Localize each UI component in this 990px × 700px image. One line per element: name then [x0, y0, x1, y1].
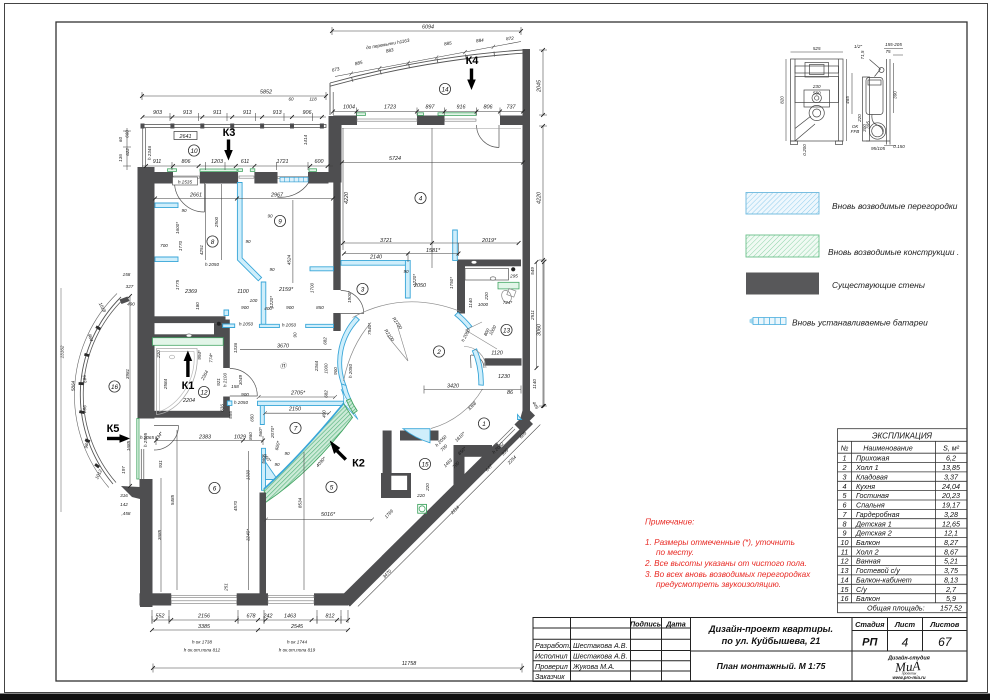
svg-text:3981: 3981: [125, 368, 130, 379]
svg-text:180: 180: [195, 302, 200, 310]
svg-text:Вновь возводимые конструкции .: Вновь возводимые конструкции .: [828, 247, 959, 257]
svg-text:2070*: 2070*: [270, 426, 275, 439]
svg-text:295: 295: [509, 274, 518, 279]
svg-text:220: 220: [416, 493, 425, 498]
svg-text:3,28: 3,28: [944, 510, 958, 519]
svg-text:913: 913: [183, 110, 192, 116]
svg-text:14: 14: [441, 87, 449, 94]
svg-text:13: 13: [841, 566, 849, 575]
svg-text:Существующие стены: Существующие стены: [832, 280, 925, 290]
svg-text:2. Все высоты указаны от чисто: 2. Все высоты указаны от чистого пола.: [644, 559, 807, 568]
svg-text:1: 1: [843, 454, 847, 463]
svg-text:20,23: 20,23: [941, 491, 960, 500]
svg-text:4: 4: [419, 196, 423, 203]
svg-text:86: 86: [507, 390, 513, 396]
svg-text:2: 2: [436, 349, 441, 356]
svg-text:5,21: 5,21: [944, 557, 958, 566]
svg-text:5864: 5864: [71, 380, 76, 391]
svg-text:3240*: 3240*: [246, 529, 251, 541]
svg-text:1581*: 1581*: [426, 248, 441, 254]
svg-text:ЭКСПЛИКАЦИЯ: ЭКСПЛИКАЦИЯ: [872, 432, 933, 441]
svg-text:1775: 1775: [175, 279, 180, 290]
svg-text:3385: 3385: [198, 624, 211, 630]
svg-text:1203: 1203: [211, 159, 223, 165]
svg-text:1723: 1723: [384, 105, 396, 111]
svg-text:24,04: 24,04: [941, 482, 960, 491]
svg-text:2159*: 2159*: [278, 287, 294, 293]
svg-text:4: 4: [902, 636, 909, 650]
svg-text:1230: 1230: [498, 374, 510, 380]
svg-text:921: 921: [216, 378, 221, 386]
svg-text:5016*: 5016*: [321, 512, 336, 518]
svg-text:15: 15: [421, 462, 429, 469]
svg-text:12: 12: [200, 390, 208, 397]
svg-text:16: 16: [841, 594, 849, 603]
svg-text:Стадия: Стадия: [855, 620, 885, 629]
svg-text:142: 142: [120, 502, 128, 507]
svg-text:5: 5: [330, 485, 334, 492]
svg-text:724*: 724*: [503, 300, 513, 305]
svg-text:1220*: 1220*: [412, 274, 417, 286]
svg-text:6: 6: [213, 486, 217, 493]
svg-text:S, м²: S, м²: [943, 444, 960, 453]
svg-text:900: 900: [286, 305, 294, 310]
svg-text:220: 220: [425, 483, 430, 492]
svg-text:157,52: 157,52: [940, 604, 962, 613]
svg-text:Лист: Лист: [894, 620, 916, 629]
svg-text:h 2050: h 2050: [282, 323, 296, 328]
svg-text:931: 931: [158, 460, 163, 468]
svg-text:,458: ,458: [122, 511, 131, 516]
svg-text:Гостиная: Гостиная: [856, 491, 889, 500]
svg-text:4: 4: [843, 482, 847, 491]
svg-text:12: 12: [841, 557, 849, 566]
svg-text:806: 806: [182, 159, 191, 165]
svg-text:Детская 1: Детская 1: [855, 519, 892, 528]
svg-text:h 2535: h 2535: [178, 180, 192, 185]
svg-text:Балкон: Балкон: [856, 594, 880, 603]
svg-text:Дата: Дата: [665, 620, 686, 629]
svg-text:8,27: 8,27: [944, 538, 959, 547]
svg-text:490: 490: [127, 302, 135, 307]
svg-text:2,7: 2,7: [945, 585, 957, 594]
svg-text:FFB: FFB: [851, 129, 860, 134]
svg-text:911: 911: [213, 110, 222, 116]
svg-text:860: 860: [248, 432, 253, 440]
svg-text:737: 737: [507, 105, 517, 111]
svg-text:3: 3: [843, 472, 847, 481]
svg-text:С/у: С/у: [856, 585, 867, 594]
svg-text:90: 90: [403, 269, 409, 274]
svg-text:700: 700: [160, 243, 168, 248]
svg-text:Кладовая: Кладовая: [856, 472, 888, 481]
svg-text:4220: 4220: [537, 192, 543, 204]
svg-text:h 2050: h 2050: [234, 400, 248, 405]
svg-text:2641: 2641: [179, 134, 192, 140]
svg-text:197: 197: [121, 466, 126, 474]
svg-text:71,5: 71,5: [860, 50, 865, 59]
svg-text:9: 9: [278, 219, 282, 226]
svg-text:327: 327: [126, 284, 134, 289]
svg-text:100: 100: [250, 298, 258, 303]
svg-text:872: 872: [506, 36, 514, 42]
svg-text:560*: 560*: [258, 427, 263, 437]
svg-text:8: 8: [843, 519, 847, 528]
svg-text:994*: 994*: [197, 350, 202, 360]
svg-text:www.pro-mia.ru: www.pro-mia.ru: [892, 675, 925, 680]
svg-text:Гардеробная: Гардеробная: [856, 510, 900, 519]
svg-text:549: 549: [530, 267, 535, 275]
svg-text:5485: 5485: [170, 494, 175, 505]
svg-text:1414: 1414: [303, 134, 308, 145]
svg-text:650: 650: [250, 414, 255, 422]
svg-text:13162: 13162: [60, 345, 65, 358]
svg-text:3721: 3721: [380, 238, 392, 244]
svg-text:1900*: 1900*: [347, 291, 352, 303]
svg-text:90: 90: [245, 239, 251, 244]
svg-text:1: 1: [482, 421, 486, 428]
svg-text:90: 90: [293, 332, 298, 338]
svg-text:60: 60: [288, 97, 294, 102]
svg-text:предусмотреть звукоизоляцию.: предусмотреть звукоизоляцию.: [656, 580, 781, 589]
svg-text:1. Размеры отмеченные (*), уто: 1. Размеры отмеченные (*), уточнить: [645, 538, 795, 547]
svg-text:220: 220: [857, 114, 862, 123]
svg-text:h 2065: h 2065: [140, 435, 154, 440]
svg-text:8,67: 8,67: [944, 547, 959, 556]
svg-text:№: №: [841, 444, 849, 453]
svg-text:5,9: 5,9: [946, 594, 956, 603]
svg-text:1721: 1721: [277, 159, 289, 165]
svg-text:90: 90: [284, 451, 290, 456]
svg-text:911: 911: [153, 159, 162, 165]
svg-text:1750*: 1750*: [449, 277, 454, 289]
svg-text:90: 90: [274, 462, 280, 467]
svg-text:Холл 2: Холл 2: [855, 547, 879, 556]
svg-text:12,1: 12,1: [944, 529, 958, 538]
svg-text:155-205: 155-205: [885, 42, 902, 47]
svg-text:3: 3: [361, 287, 365, 294]
svg-text:Примечание:: Примечание:: [645, 518, 694, 527]
svg-text:2364: 2364: [314, 360, 319, 372]
svg-text:К2: К2: [352, 458, 365, 470]
svg-text:Общая площадь:: Общая площадь:: [867, 604, 925, 613]
svg-text:4220: 4220: [344, 192, 350, 204]
svg-text:5724: 5724: [389, 156, 401, 162]
svg-text:2511: 2511: [530, 310, 535, 321]
svg-text:h ок.от.пола 819: h ок.от.пола 819: [279, 648, 316, 653]
svg-text:13,85: 13,85: [942, 463, 961, 472]
svg-text:h ок.от.пола 812: h ок.от.пола 812: [184, 648, 221, 653]
svg-text:812: 812: [326, 614, 335, 620]
svg-text:1336: 1336: [233, 342, 238, 353]
svg-text:903: 903: [153, 110, 162, 116]
svg-text:8,13: 8,13: [944, 576, 958, 585]
svg-text:850: 850: [316, 305, 324, 310]
svg-text:13: 13: [503, 328, 511, 335]
svg-text:525: 525: [813, 46, 821, 51]
svg-text:Шестакова А.В.: Шестакова А.В.: [573, 641, 628, 650]
svg-text:1220*: 1220*: [269, 296, 274, 308]
svg-text:900: 900: [241, 305, 249, 310]
svg-text:Листов: Листов: [929, 620, 960, 629]
svg-text:1120: 1120: [491, 351, 503, 357]
svg-text:136: 136: [118, 154, 123, 162]
svg-text:900: 900: [333, 367, 338, 375]
svg-text:1140: 1140: [468, 298, 473, 308]
svg-text:900: 900: [241, 392, 249, 397]
svg-text:897: 897: [426, 105, 436, 111]
svg-text:660: 660: [125, 130, 130, 138]
svg-text:90: 90: [181, 208, 187, 213]
svg-text:8: 8: [211, 239, 215, 246]
svg-text:19,17: 19,17: [942, 501, 961, 510]
svg-text:Спальня: Спальня: [856, 501, 885, 510]
svg-text:12,65: 12,65: [942, 519, 961, 528]
svg-text:Разработ.: Разработ.: [535, 641, 571, 650]
svg-text:К5: К5: [107, 423, 120, 435]
svg-text:806: 806: [484, 105, 493, 111]
svg-text:983: 983: [82, 375, 88, 384]
svg-text:Вновь устанавливаемые батареи: Вновь устанавливаемые батареи: [792, 318, 928, 328]
svg-text:75: 75: [885, 49, 891, 54]
svg-text:2584: 2584: [163, 378, 168, 390]
svg-text:884: 884: [476, 38, 485, 44]
svg-text:6,2: 6,2: [946, 454, 956, 463]
svg-text:Прихожая: Прихожая: [856, 454, 889, 463]
svg-text:1770: 1770: [178, 240, 183, 251]
svg-text:4570: 4570: [233, 500, 238, 511]
svg-text:К4: К4: [466, 55, 480, 67]
svg-text:h 2050: h 2050: [205, 262, 219, 267]
svg-text:Балкон: Балкон: [856, 538, 880, 547]
svg-text:158: 158: [123, 272, 131, 277]
svg-text:90: 90: [269, 267, 275, 272]
svg-text:1685: 1685: [126, 440, 131, 451]
svg-text:1000: 1000: [478, 302, 489, 307]
svg-text:0.200: 0.200: [802, 144, 807, 156]
svg-text:682: 682: [323, 390, 328, 398]
svg-text:6: 6: [843, 501, 847, 510]
svg-text:9: 9: [843, 529, 847, 538]
svg-text:h 2050: h 2050: [239, 322, 253, 327]
svg-text:906: 906: [303, 110, 312, 116]
svg-text:Наименование: Наименование: [863, 444, 913, 453]
svg-text:10: 10: [841, 538, 849, 547]
svg-text:3,37: 3,37: [944, 472, 959, 481]
svg-text:2150: 2150: [288, 407, 301, 413]
svg-text:67: 67: [938, 635, 953, 649]
svg-text:595: 595: [228, 411, 233, 419]
svg-text:Балкон-кабинет: Балкон-кабинет: [856, 576, 912, 585]
svg-text:220: 220: [156, 350, 161, 359]
svg-text:95/105: 95/105: [871, 146, 885, 151]
svg-text:по ул. Куйбышева, 21: по ул. Куйбышева, 21: [722, 636, 821, 646]
svg-text:Гостевой с/у: Гостевой с/у: [856, 566, 900, 575]
svg-text:60: 60: [118, 137, 123, 143]
svg-text:16: 16: [111, 384, 119, 391]
svg-text:2967: 2967: [270, 193, 284, 199]
svg-text:5852: 5852: [260, 90, 272, 96]
svg-text:911: 911: [243, 110, 252, 116]
svg-text:7: 7: [294, 426, 298, 433]
svg-text:РП: РП: [862, 637, 878, 649]
svg-text:490: 490: [322, 410, 327, 418]
svg-text:465: 465: [845, 96, 850, 104]
svg-text:220: 220: [484, 292, 489, 301]
svg-text:2019*: 2019*: [481, 238, 497, 244]
svg-text:Жукова М.А.: Жукова М.А.: [572, 662, 615, 671]
svg-text:3. Во всех вновь возводимых пе: 3. Во всех вновь возводимых перегородках: [645, 570, 811, 579]
svg-text:1000: 1000: [324, 363, 329, 374]
svg-text:Холл 1: Холл 1: [855, 463, 879, 472]
svg-text:7540*: 7540*: [367, 323, 372, 335]
svg-text:2383: 2383: [198, 435, 211, 441]
svg-text:0.150: 0.150: [893, 144, 905, 149]
svg-text:774*: 774*: [209, 353, 214, 363]
svg-text:1600*: 1600*: [175, 222, 180, 234]
svg-text:3,75: 3,75: [944, 566, 959, 575]
svg-text:Ванная: Ванная: [856, 557, 881, 566]
svg-text:984: 984: [82, 405, 87, 413]
svg-text:4251: 4251: [199, 244, 204, 255]
svg-text:2204: 2204: [182, 398, 195, 404]
svg-text:90: 90: [267, 214, 273, 219]
svg-text:1/2": 1/2": [854, 44, 862, 49]
svg-text:6094: 6094: [422, 25, 434, 31]
svg-text:3670: 3670: [277, 344, 289, 350]
svg-text:230: 230: [812, 84, 821, 89]
svg-text:h ок 1744: h ок 1744: [287, 640, 307, 645]
svg-text:Дизайн-проект квартиры.: Дизайн-проект квартиры.: [708, 624, 833, 634]
svg-text:913: 913: [273, 110, 282, 116]
svg-text:План монтажный. М 1:75: План монтажный. М 1:75: [717, 661, 826, 671]
svg-text:по месту.: по месту.: [656, 548, 694, 557]
svg-text:622: 622: [125, 148, 130, 156]
svg-text:682: 682: [323, 337, 328, 345]
svg-text:2500: 2500: [214, 216, 219, 228]
svg-text:1330: 1330: [246, 469, 251, 480]
svg-text:158: 158: [231, 384, 239, 389]
svg-text:h ок 1738: h ок 1738: [192, 640, 212, 645]
svg-text:14: 14: [841, 576, 849, 585]
svg-text:К1: К1: [182, 380, 195, 392]
svg-text:2: 2: [842, 463, 847, 472]
svg-text:611: 611: [241, 159, 250, 165]
svg-text:580: 580: [813, 91, 821, 96]
svg-text:2140: 2140: [369, 255, 382, 261]
svg-text:Исполнил: Исполнил: [535, 652, 568, 661]
svg-text:1700: 1700: [310, 282, 315, 293]
svg-text:15: 15: [841, 585, 850, 594]
svg-text:251: 251: [224, 583, 229, 592]
svg-text:916: 916: [457, 105, 466, 111]
svg-text:1004: 1004: [343, 105, 355, 111]
svg-text:Вновь возводимые перегородки: Вновь возводимые перегородки: [832, 201, 958, 211]
svg-text:2045: 2045: [537, 79, 543, 93]
svg-text:678: 678: [247, 614, 256, 620]
svg-text:h 2050: h 2050: [348, 364, 353, 378]
svg-text:h 2346: h 2346: [147, 146, 152, 160]
svg-text:3420: 3420: [447, 384, 459, 390]
svg-text:316: 316: [120, 493, 128, 498]
svg-text:820: 820: [780, 96, 785, 104]
svg-text:Шестакова А.В.: Шестакова А.В.: [573, 652, 628, 661]
svg-text:2369: 2369: [184, 289, 197, 295]
svg-text:395: 395: [866, 121, 871, 129]
svg-text:1463: 1463: [284, 614, 296, 620]
svg-text:118: 118: [309, 97, 317, 102]
svg-text:4524: 4524: [287, 254, 292, 265]
svg-text:Заказчик: Заказчик: [535, 672, 565, 681]
svg-text:Кухня: Кухня: [856, 482, 875, 491]
svg-text:Детская 2: Детская 2: [855, 529, 892, 538]
svg-text:1100: 1100: [237, 289, 249, 295]
svg-text:11: 11: [841, 547, 848, 556]
svg-text:2545: 2545: [290, 624, 304, 630]
svg-text:2661: 2661: [189, 193, 202, 199]
svg-text:1140: 1140: [532, 379, 537, 389]
svg-text:8534: 8534: [298, 497, 303, 508]
svg-text:2705*: 2705*: [290, 391, 306, 397]
svg-text:h 2100: h 2100: [223, 373, 228, 387]
svg-text:636: 636: [220, 404, 225, 412]
svg-text:2156: 2156: [197, 614, 210, 620]
svg-text:Подпись: Подпись: [630, 620, 661, 629]
svg-text:560*: 560*: [261, 454, 266, 464]
svg-text:11758: 11758: [402, 661, 417, 667]
svg-text:3060: 3060: [537, 324, 543, 336]
svg-text:Проверил: Проверил: [535, 662, 568, 671]
svg-text:К3: К3: [223, 127, 236, 139]
svg-text:600: 600: [315, 159, 324, 165]
svg-text:10: 10: [190, 148, 198, 155]
